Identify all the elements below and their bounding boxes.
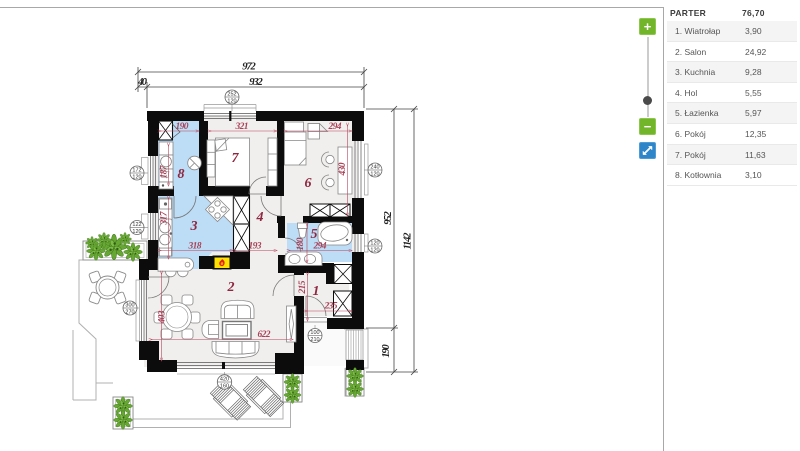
svg-text:294: 294 [313,242,327,252]
svg-text:5: 5 [311,227,318,242]
svg-text:317: 317 [160,210,170,225]
svg-text:120: 120 [370,172,379,178]
svg-text:235: 235 [324,302,338,312]
svg-text:7: 7 [232,151,240,166]
svg-text:193: 193 [249,242,262,252]
svg-text:252: 252 [227,92,236,98]
svg-text:4: 4 [256,210,264,225]
svg-text:2: 2 [227,280,235,295]
svg-text:270: 270 [125,310,134,316]
svg-text:120: 120 [227,99,236,105]
svg-text:120: 120 [132,229,141,235]
svg-text:420: 420 [220,377,229,383]
svg-text:952: 952 [383,211,394,225]
svg-text:294: 294 [328,122,342,132]
svg-text:8: 8 [178,167,185,182]
svg-text:318: 318 [188,242,202,252]
svg-text:180: 180 [296,237,306,250]
svg-text:120: 120 [370,241,379,247]
svg-text:120: 120 [132,175,141,181]
svg-text:932: 932 [249,77,263,88]
svg-text:240: 240 [370,165,379,171]
svg-text:210: 210 [310,337,319,343]
svg-text:403: 403 [158,310,168,324]
svg-text:215: 215 [298,280,308,294]
svg-text:3: 3 [190,219,198,234]
svg-text:100: 100 [310,330,319,336]
svg-text:40: 40 [137,77,148,88]
svg-text:972: 972 [242,62,256,73]
svg-text:160: 160 [220,384,229,390]
svg-text:122: 122 [132,222,141,228]
svg-text:1142: 1142 [403,232,414,250]
svg-text:6: 6 [305,176,312,191]
svg-text:120: 120 [370,248,379,254]
svg-text:321: 321 [235,122,249,132]
svg-text:187: 187 [160,164,170,178]
svg-text:190: 190 [381,344,392,358]
svg-text:430: 430 [338,162,348,176]
svg-text:622: 622 [258,330,271,340]
svg-text:300: 300 [125,303,134,309]
svg-text:172: 172 [132,168,141,174]
svg-text:190: 190 [176,122,189,132]
svg-text:1: 1 [313,284,320,299]
